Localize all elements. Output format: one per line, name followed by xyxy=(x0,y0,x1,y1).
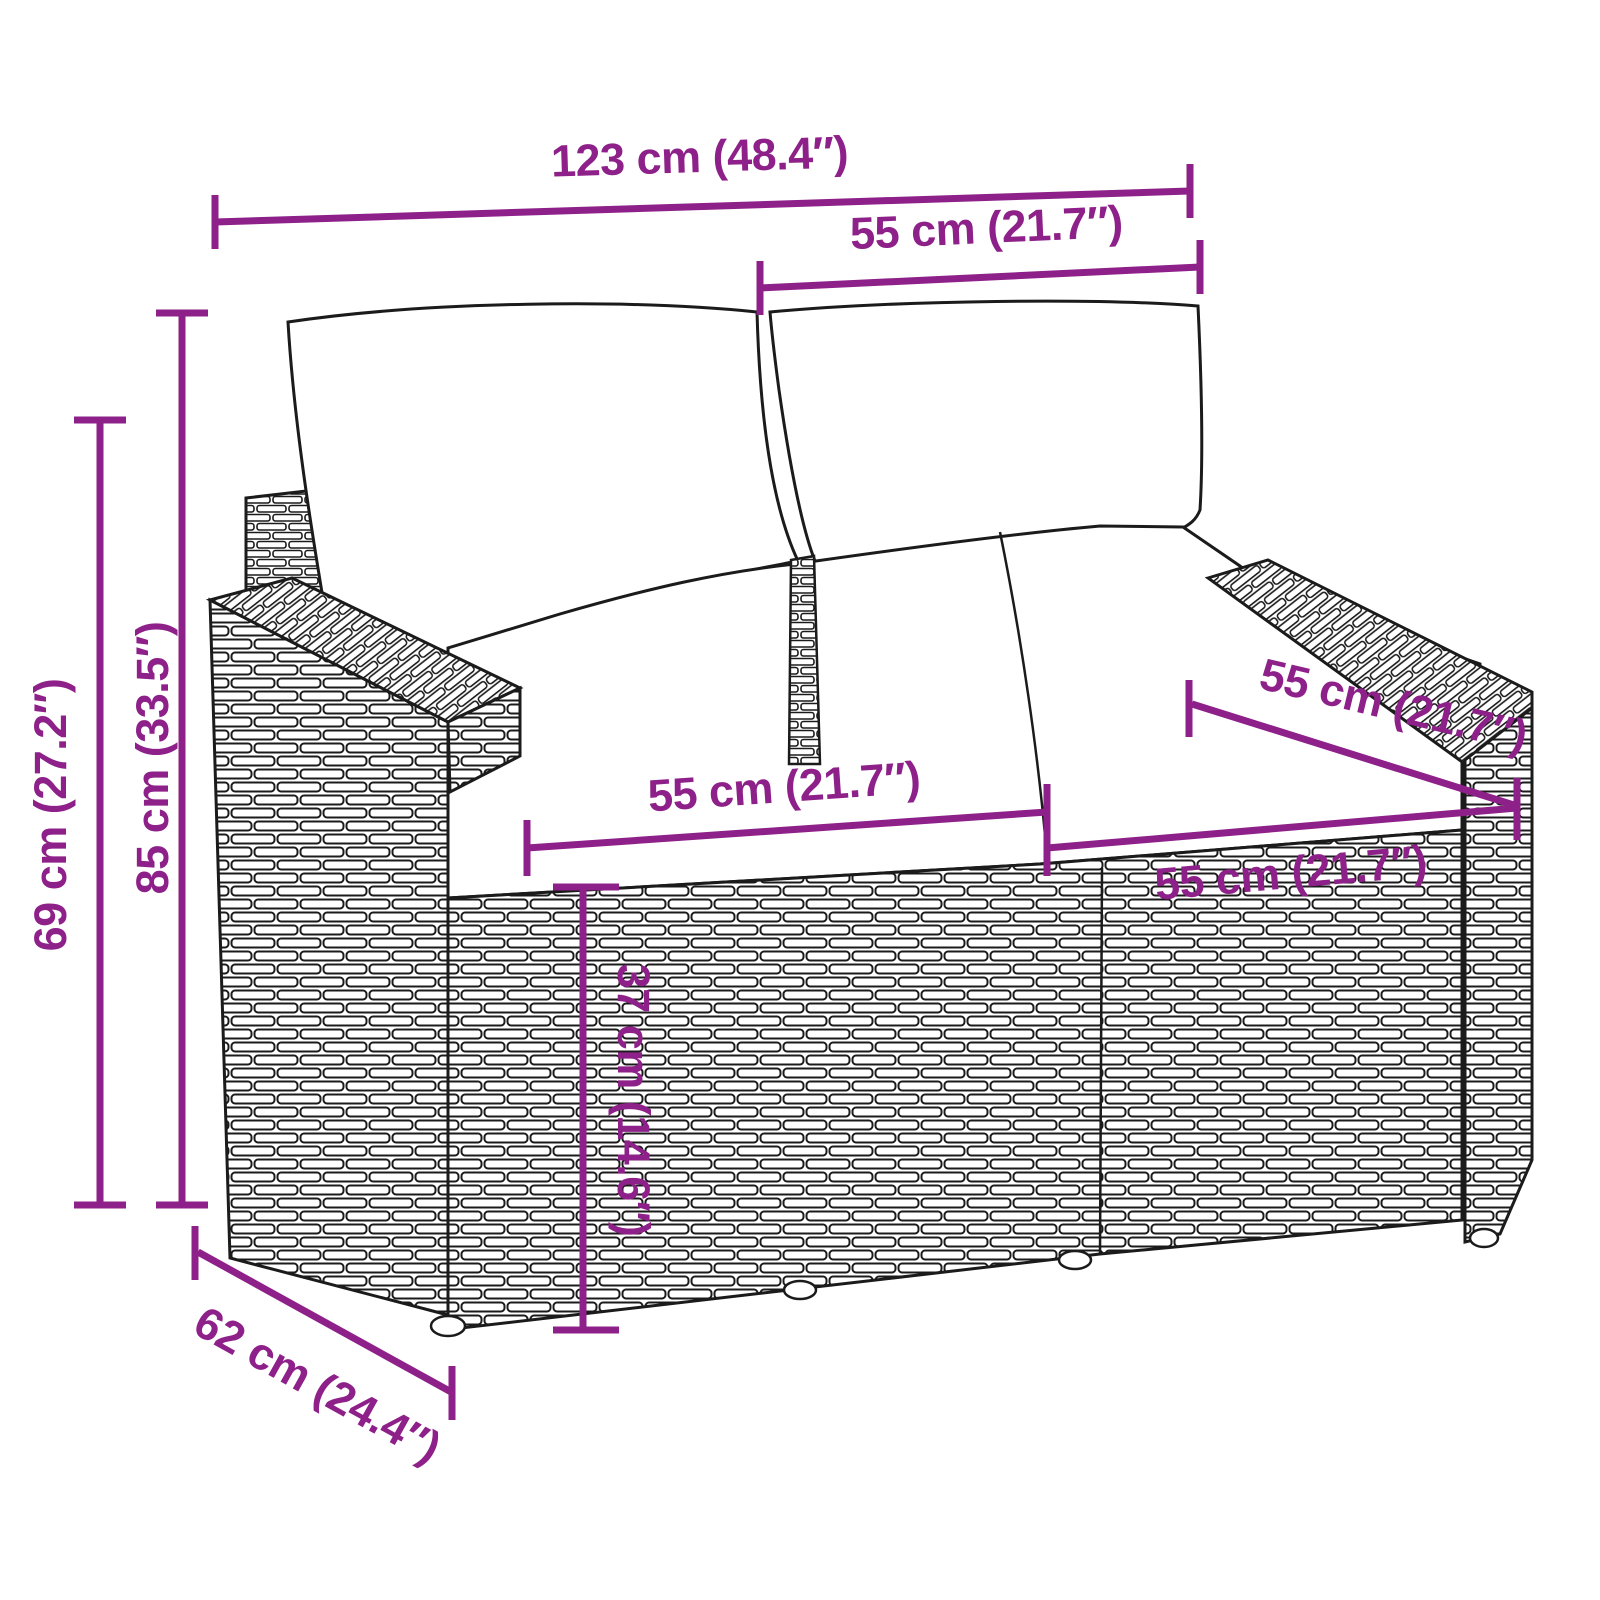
left-arm xyxy=(210,600,448,1315)
backrest-panel-center xyxy=(789,556,820,764)
dim-backrest-width-label: 55 cm (21.7″) xyxy=(849,196,1124,259)
sofa-foot xyxy=(784,1281,816,1299)
dim-overall-width-label: 123 cm (48.4″) xyxy=(550,126,849,186)
seat-base xyxy=(444,830,1462,1330)
dim-back-height-label: 69 cm (27.2″) xyxy=(25,679,76,952)
dim-seat-height-label: 37 cm (14.6″) xyxy=(608,964,659,1237)
sofa-foot xyxy=(1470,1229,1498,1247)
diagram-canvas: 123 cm (48.4″) 55 cm (21.7″) 69 cm (27.2… xyxy=(0,0,1600,1600)
back-cushion-right xyxy=(770,301,1202,561)
dim-back-height xyxy=(74,420,126,1205)
dim-overall-height-label: 85 cm (33.5″) xyxy=(127,622,178,895)
product-dimension-diagram: 123 cm (48.4″) 55 cm (21.7″) 69 cm (27.2… xyxy=(0,0,1600,1600)
sofa-foot xyxy=(431,1316,465,1336)
sofa-line-art xyxy=(210,301,1532,1336)
right-arm xyxy=(1465,708,1532,1242)
dim-overall-depth-label: 62 cm (24.4″) xyxy=(186,1296,449,1473)
sofa-foot xyxy=(1059,1251,1091,1269)
